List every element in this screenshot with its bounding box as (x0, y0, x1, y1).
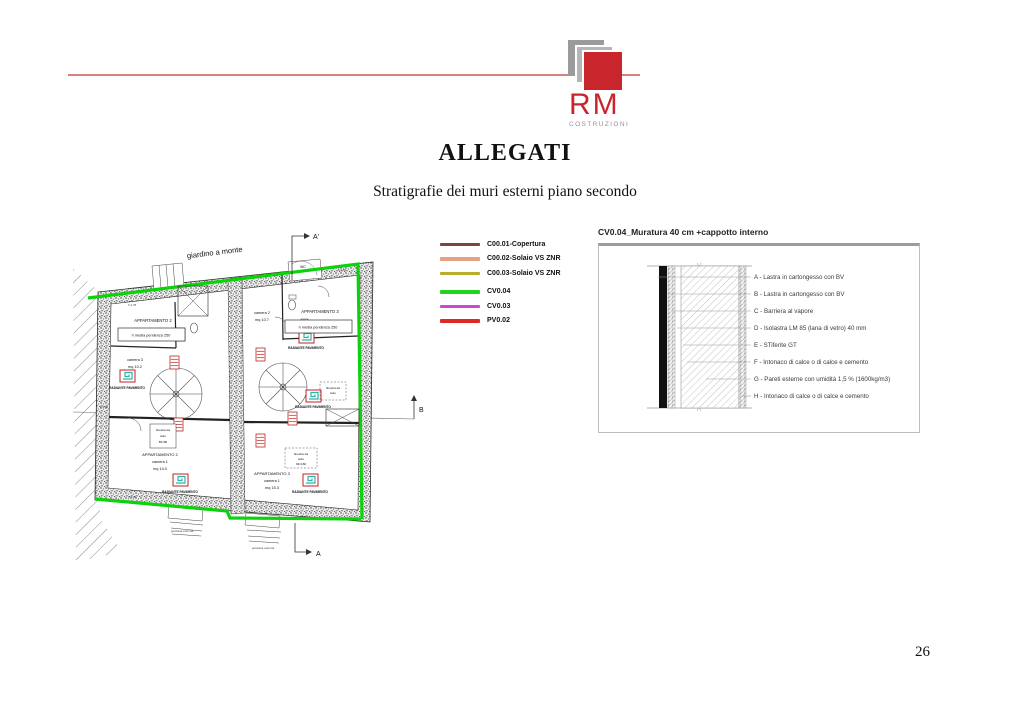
section-marker-label: A' (313, 234, 319, 241)
radiante-label: RADIANTE PAVIMENTO (288, 346, 324, 350)
floor-plan: RADIANTE PAVIMENTO RADIANTE PAVIMENTO RA… (70, 222, 430, 612)
legend-label: C00.01-Copertura (487, 241, 545, 248)
skylight-label: finestra da (326, 386, 340, 390)
company-logo: RM COSTRUZIONI (565, 38, 645, 133)
page-subtitle: Stratigrafie dei muri esterni piano seco… (330, 183, 680, 201)
room-label: APPARTAMENTO 2 (142, 452, 178, 457)
room-label: mq 14.0 (153, 467, 167, 471)
skylight-label: finestra da (156, 428, 170, 432)
radiante-label: RADIANTE PAVIMENTO (162, 490, 198, 494)
layer-label: A - Lastra in cartongesso con BV (754, 274, 845, 281)
layer-label: F - Intonaco di calce o di calce e cemen… (754, 359, 869, 366)
room-label: mq 10.2 (128, 365, 142, 369)
radiante-label: RADIANTE PAVIMENTO (109, 386, 145, 390)
skylight-label: tetto (160, 434, 166, 438)
room-label: camera 1 (264, 479, 280, 483)
room-label: APPARTAMENTO 3 (301, 309, 339, 314)
legend-item: CV0.03 (440, 299, 590, 314)
logo-tagline: COSTRUZIONI (569, 121, 629, 128)
room-label: camera 1 (152, 460, 168, 464)
skylight-size: 94×160 (296, 462, 306, 466)
radiante-label: RADIANTE PAVIMENTO (295, 405, 331, 409)
room-label: APPARTAMENTO 3 (254, 471, 290, 476)
layer-label: G - Pareti esterne con umidità 1,5 % (16… (754, 376, 890, 383)
legend-item: PV0.02 (440, 314, 590, 329)
garden-label: giardino a monte (186, 245, 243, 261)
section-marker-label: A (316, 551, 321, 558)
legend-label: CV0.03 (487, 303, 510, 310)
elevation-label: h 3.00 (100, 405, 109, 409)
elevation-label: h 2.78 (128, 303, 137, 307)
skylight-size: 80×80 (159, 440, 168, 444)
page-title: ALLEGATI (330, 140, 680, 167)
pendenza-label: h media pendenza 250 (132, 334, 171, 338)
layer-label: D - Isolastra LM 85 (lana di vetro) 40 m… (754, 325, 866, 332)
legend-item: CV0.04 (440, 285, 590, 300)
legend-item: C00.02-Solaio VS ZNR (440, 252, 590, 267)
legend-swatch (440, 290, 480, 294)
layer-label: E - STiferite GT (754, 342, 797, 349)
wall-section-layers (647, 263, 752, 411)
section-marker-label: B (419, 407, 424, 414)
legend-swatch (440, 305, 480, 309)
room-label: mq 15.3 (265, 486, 279, 490)
legend-item: C00.03-Solaio VS ZNR (440, 266, 590, 281)
layer-labels: A - Lastra in cartongesso con BV B - Las… (754, 274, 890, 400)
layer-label: H - Intonaco di calce o di calce e cemen… (754, 393, 869, 400)
page-number: 26 (915, 644, 930, 661)
wall-detail-title: CV0.04_Muratura 40 cm +cappotto interno (598, 227, 920, 237)
wall-detail-panel: A - Lastra in cartongesso con BV B - Las… (598, 243, 920, 433)
skylight-label: tetto (298, 457, 304, 461)
shutter-label: persiana esterna (252, 546, 275, 550)
wall-section-drawing: A - Lastra in cartongesso con BV B - Las… (599, 246, 919, 432)
legend-label: PV0.02 (487, 317, 510, 324)
skylight-label: finestra da (294, 452, 308, 456)
room-label: APPARTAMENTO 2 (134, 318, 172, 323)
layer-label: B - Lastra in cartongesso con BV (754, 291, 845, 298)
elevation-label: h 3.00 (128, 495, 137, 499)
skylight-label: tetto (330, 391, 336, 395)
legend-swatch (440, 257, 480, 261)
legend-item: C00.01-Copertura (440, 237, 590, 252)
legend-label: CV0.04 (487, 288, 510, 295)
legend-swatch (440, 319, 480, 323)
legend-swatch (440, 243, 480, 247)
pendenza-label: h media pendenza 250 (299, 326, 338, 330)
legend-label: C00.03-Solaio VS ZNR (487, 270, 561, 277)
legend-swatch (440, 272, 480, 276)
elevation-label: h 2.55 (338, 268, 347, 272)
logo-text: RM (569, 88, 620, 122)
room-label: mq 10.7 (255, 318, 269, 322)
layer-label: C - Barriera al vapore (754, 308, 814, 315)
room-label: camera 3 (127, 358, 143, 362)
document-page: RM COSTRUZIONI ALLEGATI Stratigrafie dei… (0, 0, 1023, 723)
room-label: camera 2 (254, 311, 270, 315)
room-label: WC (300, 265, 306, 269)
shutter-label: persiana esterna (171, 529, 194, 533)
logo-square-front-icon (582, 50, 622, 90)
legend: C00.01-Copertura C00.02-Solaio VS ZNR C0… (440, 237, 590, 328)
header-rule (68, 74, 640, 76)
legend-label: C00.02-Solaio VS ZNR (487, 255, 561, 262)
radiante-label: RADIANTE PAVIMENTO (292, 490, 328, 494)
